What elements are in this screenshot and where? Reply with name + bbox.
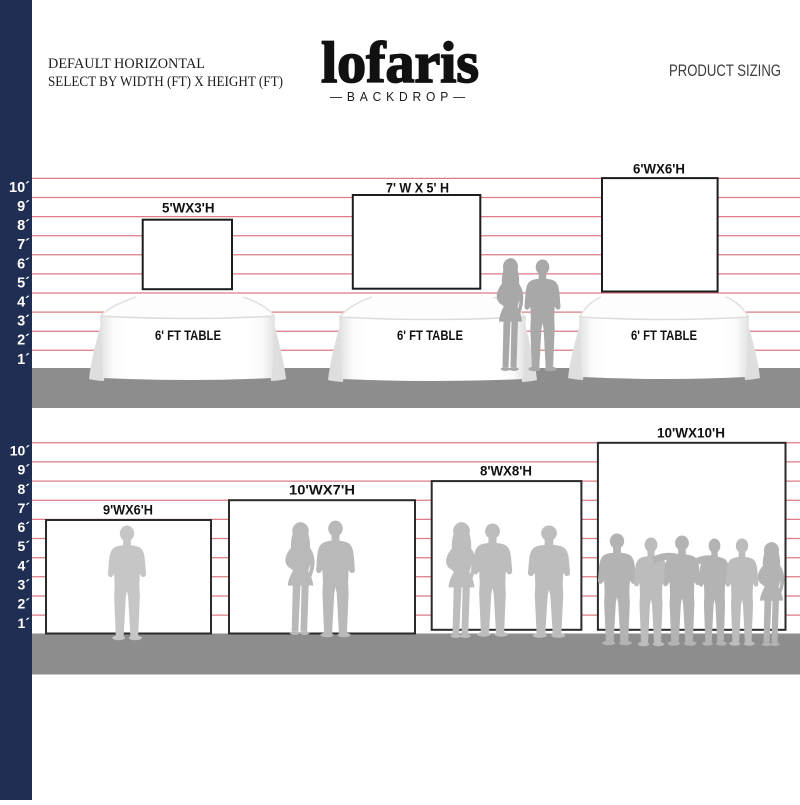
svg-text:7´: 7´ [17,237,30,253]
svg-text:9´: 9´ [17,199,30,215]
svg-text:DEFAULT HORIZONTAL: DEFAULT HORIZONTAL [48,56,205,72]
svg-text:3´: 3´ [17,314,30,330]
svg-text:5´: 5´ [17,275,30,291]
svg-text:10'WX10'H: 10'WX10'H [657,425,725,441]
svg-text:1´: 1´ [17,352,30,368]
svg-text:6' FT TABLE: 6' FT TABLE [155,328,221,343]
svg-text:8´: 8´ [18,481,31,497]
svg-text:9'WX6'H: 9'WX6'H [103,502,153,518]
svg-text:8'WX8'H: 8'WX8'H [480,463,532,479]
svg-text:10´: 10´ [10,443,31,459]
svg-text:5'WX3'H: 5'WX3'H [162,200,215,216]
svg-text:5´: 5´ [18,538,31,554]
svg-text:6'WX6'H: 6'WX6'H [633,161,685,177]
svg-text:7' W X 5' H: 7' W X 5' H [386,180,449,196]
svg-text:lofaris: lofaris [321,30,479,95]
svg-text:—BACKDROP—: —BACKDROP— [330,90,470,104]
svg-text:10'WX7'H: 10'WX7'H [289,482,355,498]
svg-text:10´: 10´ [9,180,30,196]
svg-text:6' FT TABLE: 6' FT TABLE [397,328,463,343]
svg-text:6´: 6´ [17,256,30,272]
svg-text:8´: 8´ [17,218,30,234]
svg-text:6' FT TABLE: 6' FT TABLE [631,328,697,343]
svg-text:2´: 2´ [18,596,31,612]
svg-text:1´: 1´ [18,615,31,631]
svg-text:9´: 9´ [18,462,31,478]
svg-text:SELECT BY WIDTH (FT) X HEIGHT: SELECT BY WIDTH (FT) X HEIGHT (FT) [48,74,283,90]
svg-text:7´: 7´ [18,500,31,516]
svg-text:6´: 6´ [18,519,31,535]
svg-text:3´: 3´ [18,577,31,593]
svg-text:2´: 2´ [17,333,30,349]
svg-text:PRODUCT SIZING: PRODUCT SIZING [669,62,781,80]
svg-text:4´: 4´ [18,557,31,573]
svg-text:4´: 4´ [17,295,30,311]
